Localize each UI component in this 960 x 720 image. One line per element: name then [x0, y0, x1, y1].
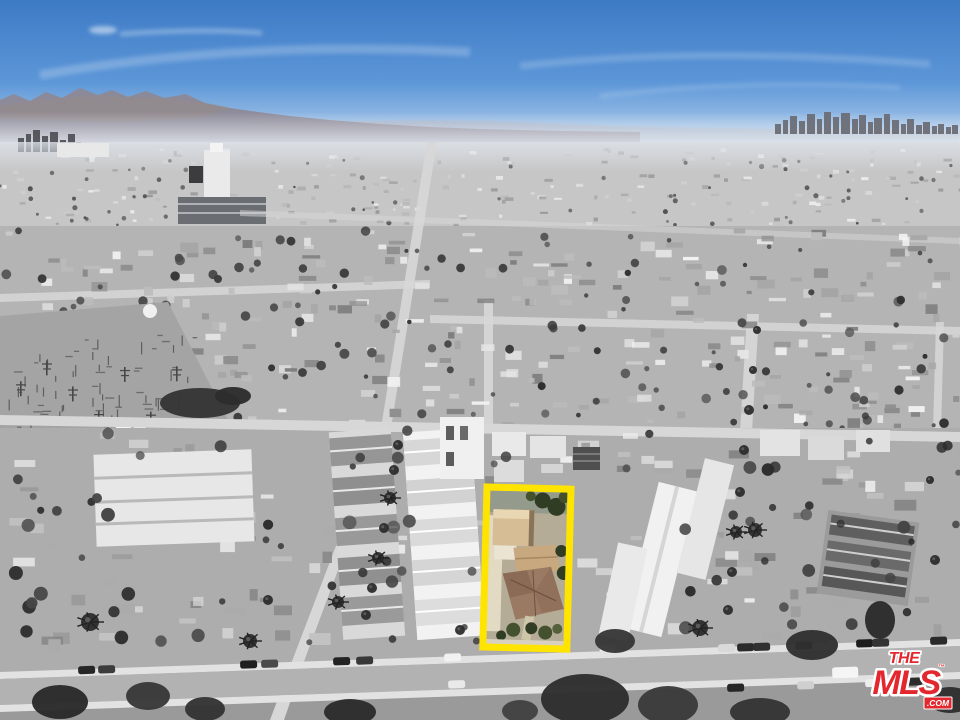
logo-tm-text: ™ — [938, 664, 945, 671]
horizon-haze — [0, 112, 960, 146]
aerial-scene — [0, 0, 960, 720]
logo-com-text: .COM — [927, 698, 950, 708]
storage-tank — [143, 304, 157, 318]
aerial-photo: THE MLS ™ .COM — [0, 0, 960, 720]
far-haze — [0, 142, 960, 172]
highlight-property — [483, 487, 573, 649]
solar-roof — [573, 447, 600, 470]
logo-mls-text: MLS — [872, 664, 941, 702]
apartment-large-white — [93, 449, 254, 546]
mls-logo: THE MLS ™ .COM — [870, 642, 956, 716]
landmark-white-tower — [204, 150, 230, 200]
logo-com-badge: .COM — [924, 697, 952, 709]
tower-sign — [189, 166, 203, 183]
